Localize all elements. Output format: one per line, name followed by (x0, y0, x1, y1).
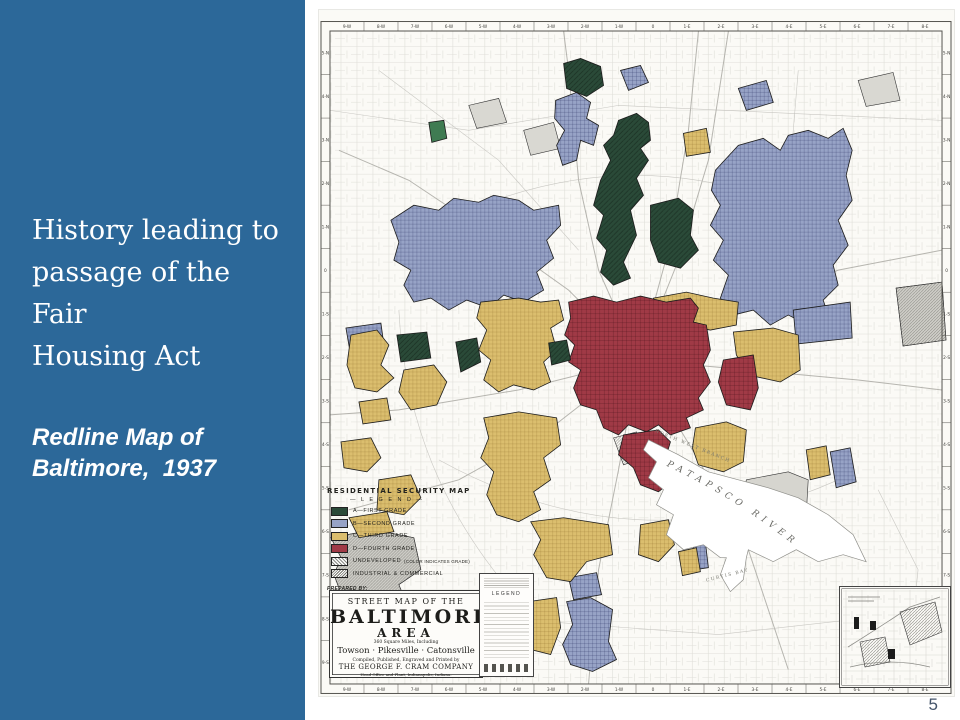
svg-text:2-W: 2-W (581, 687, 590, 693)
svg-text:4-N: 4-N (943, 94, 950, 100)
svg-text:1-W: 1-W (615, 24, 624, 30)
svg-text:4-S: 4-S (322, 442, 329, 448)
svg-text:6-W: 6-W (445, 687, 454, 693)
title-block-area: AREA (330, 627, 482, 639)
svg-text:2-N: 2-N (322, 181, 329, 187)
legend-subtitle: — L E G E N D — (327, 497, 447, 503)
svg-text:3-W: 3-W (547, 24, 556, 30)
grade-a-swatch (331, 507, 348, 516)
svg-text:2-W: 2-W (581, 24, 590, 30)
grade-c-swatch (331, 532, 348, 541)
svg-text:8-E: 8-E (922, 24, 929, 30)
svg-text:5-E: 5-E (820, 687, 827, 693)
svg-text:5-N: 5-N (943, 50, 950, 56)
inset-map (839, 586, 951, 688)
mini-legend-header (484, 577, 529, 589)
svg-text:7-W: 7-W (411, 687, 420, 693)
svg-text:5-S: 5-S (943, 486, 950, 492)
svg-text:6-E: 6-E (854, 24, 861, 30)
svg-text:6-W: 6-W (445, 24, 454, 30)
svg-text:1-E: 1-E (684, 687, 691, 693)
svg-text:3-E: 3-E (752, 24, 759, 30)
svg-text:4-N: 4-N (322, 94, 329, 100)
title-block-towns: Towson · Pikesville · Catonsville (330, 646, 482, 656)
slide-subtitle: Redline Map of Baltimore, 1937 (32, 422, 292, 484)
svg-text:3-W: 3-W (547, 687, 556, 693)
svg-text:6-S: 6-S (943, 529, 950, 535)
legend-item-c: C—THIRD GRADE (331, 532, 473, 540)
svg-text:5-E: 5-E (820, 24, 827, 30)
svg-text:7-E: 7-E (888, 24, 895, 30)
industrial-swatch (331, 569, 348, 578)
svg-text:3-N: 3-N (322, 137, 329, 143)
title-block-line2: 360 Square Miles, Including (330, 640, 482, 645)
grade-b-swatch (331, 519, 348, 528)
legend-item-a: A—FIRST GRADE (331, 507, 473, 515)
svg-text:3-E: 3-E (752, 687, 759, 693)
svg-text:2-E: 2-E (718, 24, 725, 30)
svg-text:1-E: 1-E (684, 24, 691, 30)
mini-legend-title: LEGEND (484, 591, 529, 597)
svg-text:3-N: 3-N (943, 137, 950, 143)
title-block-publisher: THE GEORGE F. CRAM COMPANY (330, 663, 482, 671)
legend-item-b: B—SECOND GRADE (331, 520, 473, 528)
svg-text:5-W: 5-W (479, 24, 488, 30)
map-title-block: STREET MAP OF THE BALTIMORE AREA 360 Squ… (329, 590, 483, 678)
grid-labels-right: 5-N4-N3-N2-N1-N01-S2-S3-S4-S5-S6-S7-S8-S… (943, 50, 951, 665)
grade-d-swatch (331, 544, 348, 553)
street-map-mini-legend: LEGEND (479, 573, 534, 677)
page-number: 5 (929, 695, 938, 715)
title-block-line4: Head Office and Plant, Indianapolis, Ind… (330, 672, 482, 677)
svg-text:4-S: 4-S (943, 442, 950, 448)
svg-text:2-S: 2-S (322, 355, 329, 361)
mini-legend-scalebar (484, 664, 529, 672)
svg-text:2-S: 2-S (943, 355, 950, 361)
svg-text:1-N: 1-N (322, 224, 329, 230)
svg-text:0: 0 (652, 687, 655, 693)
svg-text:4-W: 4-W (513, 24, 522, 30)
redline-map-image: PATAPSCO RIVER NORTH WEST BRANCH CURTIS … (319, 10, 954, 696)
svg-text:8-W: 8-W (377, 687, 386, 693)
mini-legend-rows (484, 599, 529, 661)
legend-item-undeveloped: UNDEVELOPED (COLOR INDICATES GRADE) (331, 557, 473, 565)
svg-text:2-N: 2-N (943, 181, 950, 187)
svg-text:0: 0 (652, 24, 655, 30)
svg-text:5-W: 5-W (479, 687, 488, 693)
svg-text:3-S: 3-S (322, 399, 329, 405)
sidebar-panel: History leading to passage of the Fair H… (0, 0, 305, 720)
svg-text:5-N: 5-N (322, 50, 329, 56)
undeveloped-swatch (331, 557, 348, 566)
svg-text:4-E: 4-E (786, 24, 793, 30)
svg-text:1-N: 1-N (943, 224, 950, 230)
svg-text:0: 0 (324, 268, 327, 274)
slide-title: History leading to passage of the Fair H… (32, 210, 282, 378)
svg-text:7-S: 7-S (943, 573, 950, 579)
title-block-line1: STREET MAP OF THE (330, 597, 482, 606)
svg-text:7-W: 7-W (411, 24, 420, 30)
svg-text:1-S: 1-S (322, 312, 329, 318)
svg-text:1-W: 1-W (615, 687, 624, 693)
svg-text:2-E: 2-E (718, 687, 725, 693)
presentation-slide: History leading to passage of the Fair H… (0, 0, 960, 720)
legend-item-industrial: INDUSTRIAL & COMMERCIAL (331, 570, 473, 578)
svg-text:9-W: 9-W (343, 24, 352, 30)
svg-text:8-W: 8-W (377, 24, 386, 30)
svg-text:3-S: 3-S (943, 399, 950, 405)
svg-text:4-W: 4-W (513, 687, 522, 693)
svg-text:9-W: 9-W (343, 687, 352, 693)
legend-item-d: D—FOURTH GRADE (331, 545, 473, 553)
svg-text:1-S: 1-S (943, 312, 950, 318)
legend-title: RESIDENTIAL SECURITY MAP (327, 487, 473, 495)
svg-text:0: 0 (945, 268, 948, 274)
svg-text:4-E: 4-E (786, 687, 793, 693)
title-block-name: BALTIMORE (330, 607, 482, 627)
